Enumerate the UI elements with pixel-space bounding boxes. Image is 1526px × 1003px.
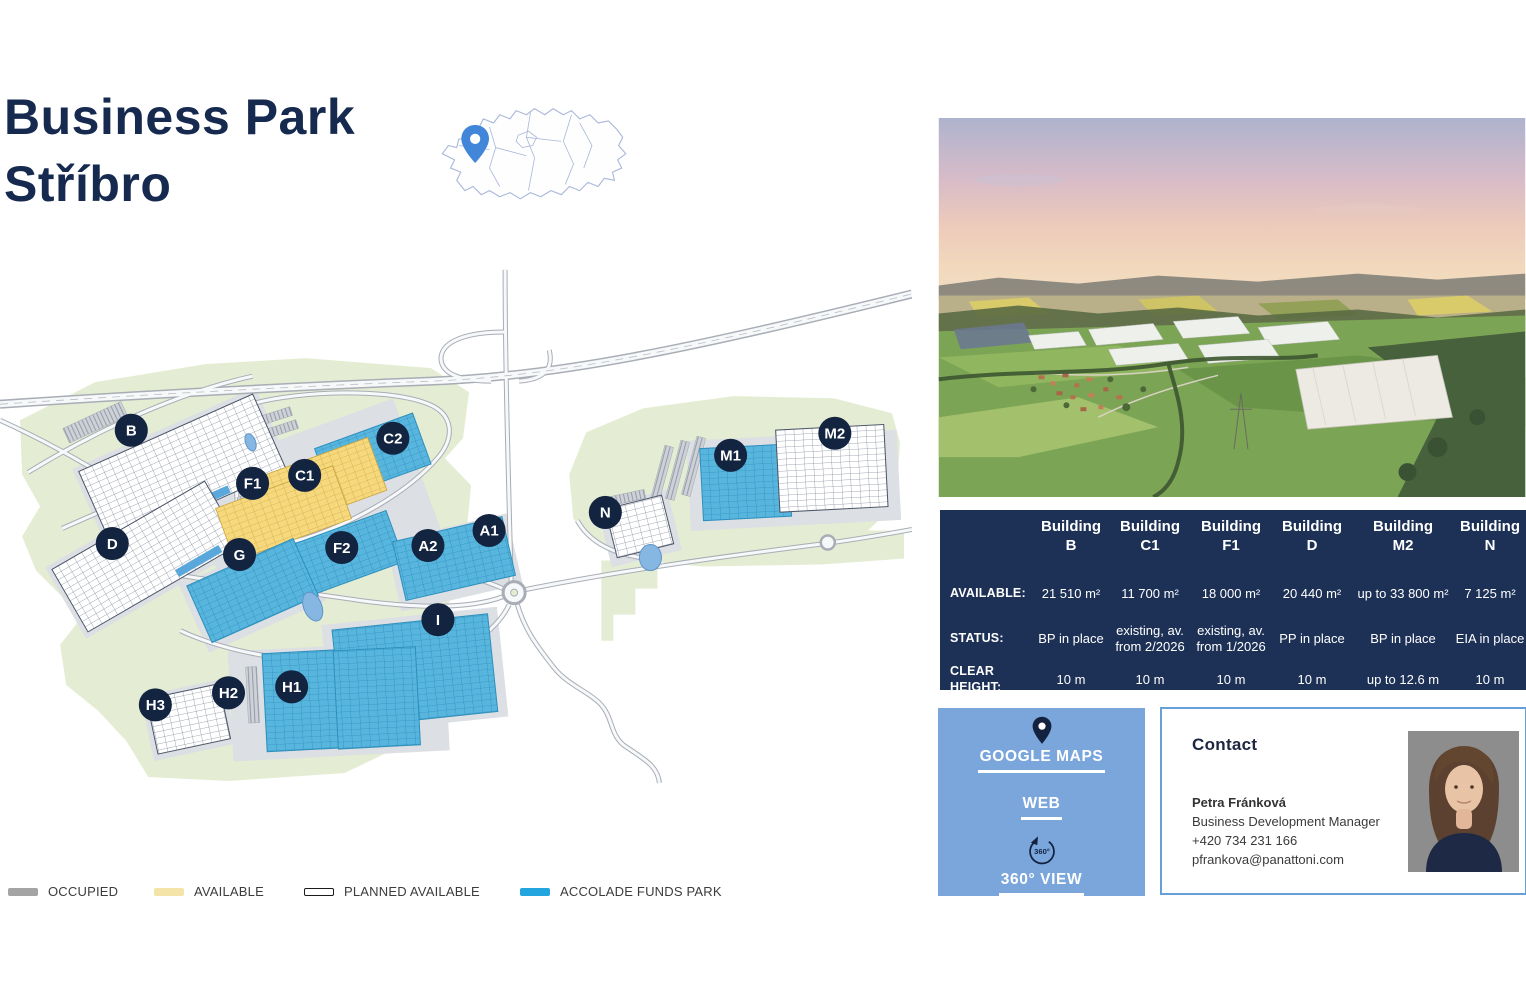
available-F1: 18 000 m² xyxy=(1190,574,1272,614)
col-header-M2: BuildingM2 xyxy=(1352,510,1454,574)
contact-card: Contact Petra Fránková Business Developm… xyxy=(1160,707,1526,895)
site-plan-svg: B C2 C1 F1 F2 D G A2 A1 I H2 H1 H3 N M1 … xyxy=(0,268,912,813)
svg-text:M1: M1 xyxy=(720,448,741,465)
planned-swatch xyxy=(304,888,334,896)
row-label-clear-height: CLEAR HEIGHT: xyxy=(940,664,1032,695)
col-header-C1: BuildingC1 xyxy=(1110,510,1190,574)
contact-heading: Contact xyxy=(1192,735,1257,755)
building-label-F2: F2 xyxy=(325,531,358,564)
building-label-G: G xyxy=(223,538,256,571)
table-corner-cell xyxy=(940,510,1032,574)
building-label-M1: M1 xyxy=(714,439,747,472)
available-B: 21 510 m² xyxy=(1032,574,1110,614)
svg-text:F1: F1 xyxy=(244,476,262,493)
clear-height-C1: 10 m xyxy=(1110,664,1190,695)
legend-item-available: AVAILABLE xyxy=(154,884,264,899)
aerial-photo xyxy=(938,118,1526,497)
czech-map-svg xyxy=(428,92,633,240)
building-label-A2: A2 xyxy=(411,529,444,562)
status-F1: existing, av. from 1/2026 xyxy=(1190,614,1272,664)
map-pin-icon xyxy=(1029,716,1055,745)
svg-text:A2: A2 xyxy=(418,538,437,555)
occupied-label: OCCUPIED xyxy=(48,884,118,899)
clear-height-M2: up to 12.6 m xyxy=(1352,664,1454,695)
svg-text:A1: A1 xyxy=(479,523,498,540)
building-label-F1: F1 xyxy=(236,467,269,500)
svg-text:G: G xyxy=(234,547,246,564)
status-B: BP in place xyxy=(1032,614,1110,664)
status-D: PP in place xyxy=(1272,614,1352,664)
available-N: 7 125 m² xyxy=(1454,574,1526,614)
status-M2: BP in place xyxy=(1352,614,1454,664)
legend-item-occupied: OCCUPIED xyxy=(8,884,118,899)
links-panel: GOOGLE MAPS WEB 360° 360° VIEW xyxy=(938,708,1145,896)
contact-name: Petra Fránková xyxy=(1192,793,1380,812)
view-360-link[interactable]: 360° VIEW xyxy=(999,871,1084,896)
svg-text:C1: C1 xyxy=(295,468,314,485)
aerial-photo-svg xyxy=(938,118,1526,497)
building-label-H2: H2 xyxy=(212,676,245,709)
building-label-H1: H1 xyxy=(275,670,308,703)
col-header-B: BuildingB xyxy=(1032,510,1110,574)
available-D: 20 440 m² xyxy=(1272,574,1352,614)
clear-height-N: 10 m xyxy=(1454,664,1526,695)
building-H1 xyxy=(333,647,420,749)
building-label-N: N xyxy=(589,496,622,529)
row-label-status: STATUS: xyxy=(940,614,1032,664)
svg-text:D: D xyxy=(107,536,118,553)
planned-label: PLANNED AVAILABLE xyxy=(344,884,480,899)
row-label-available: AVAILABLE: xyxy=(940,574,1032,614)
available-M2: up to 33 800 m² xyxy=(1352,574,1454,614)
building-label-D: D xyxy=(96,527,129,560)
status-C1: existing, av. from 2/2026 xyxy=(1110,614,1190,664)
building-label-M2: M2 xyxy=(818,417,851,450)
svg-text:H1: H1 xyxy=(282,679,301,696)
clear-height-F1: 10 m xyxy=(1190,664,1272,695)
web-link[interactable]: WEB xyxy=(1021,795,1063,820)
status-N: EIA in place xyxy=(1454,614,1526,664)
contact-details: Petra Fránková Business Development Mana… xyxy=(1192,793,1380,869)
clear-height-B: 10 m xyxy=(1032,664,1110,695)
roundabout-east xyxy=(821,535,835,549)
business-park-stribro-page: Business Park Stříbro xyxy=(0,0,1526,1003)
available-C1: 11 700 m² xyxy=(1110,574,1190,614)
col-header-N: BuildingN xyxy=(1454,510,1526,574)
contact-email-link[interactable]: pfrankova@panattoni.com xyxy=(1192,852,1344,867)
svg-text:M2: M2 xyxy=(824,426,845,443)
page-title: Business Park Stříbro xyxy=(4,84,355,218)
svg-text:B: B xyxy=(126,423,137,440)
360-degree-icon: 360° xyxy=(1020,834,1064,867)
svg-text:F2: F2 xyxy=(333,540,351,557)
building-label-C1: C1 xyxy=(288,459,321,492)
page-title-line1: Business Park xyxy=(4,84,355,151)
svg-text:360°: 360° xyxy=(1034,847,1050,856)
occupied-swatch xyxy=(8,888,38,896)
building-H2 xyxy=(262,650,339,752)
building-label-C2: C2 xyxy=(376,422,409,455)
svg-text:H2: H2 xyxy=(219,685,238,702)
site-plan-map: B C2 C1 F1 F2 D G A2 A1 I H2 H1 H3 N M1 … xyxy=(0,268,912,813)
google-maps-link[interactable]: GOOGLE MAPS xyxy=(978,748,1106,773)
accolade-swatch xyxy=(520,888,550,896)
accolade-label: ACCOLADE FUNDS PARK xyxy=(560,884,722,899)
svg-text:C2: C2 xyxy=(383,431,402,448)
spec-table: BuildingB BuildingC1 BuildingF1 Building… xyxy=(940,510,1526,690)
page-title-line2: Stříbro xyxy=(4,151,355,218)
building-label-I: I xyxy=(421,603,454,636)
col-header-D: BuildingD xyxy=(1272,510,1352,574)
legend: OCCUPIED AVAILABLE PLANNED AVAILABLE ACC… xyxy=(6,880,906,910)
clear-height-D: 10 m xyxy=(1272,664,1352,695)
legend-item-accolade: ACCOLADE FUNDS PARK xyxy=(520,884,722,899)
building-label-B: B xyxy=(115,414,148,447)
building-label-H3: H3 xyxy=(139,688,172,721)
czech-republic-map xyxy=(428,92,633,240)
col-header-F1: BuildingF1 xyxy=(1190,510,1272,574)
svg-text:H3: H3 xyxy=(146,697,165,714)
svg-text:I: I xyxy=(436,612,440,629)
contact-phone: +420 734 231 166 xyxy=(1192,831,1380,850)
legend-item-planned: PLANNED AVAILABLE xyxy=(304,884,480,899)
svg-text:N: N xyxy=(600,505,611,522)
building-label-A1: A1 xyxy=(473,514,506,547)
contact-role: Business Development Manager xyxy=(1192,812,1380,831)
buildings xyxy=(52,394,888,754)
available-label: AVAILABLE xyxy=(194,884,264,899)
available-swatch xyxy=(154,888,184,896)
contact-photo xyxy=(1408,731,1519,872)
